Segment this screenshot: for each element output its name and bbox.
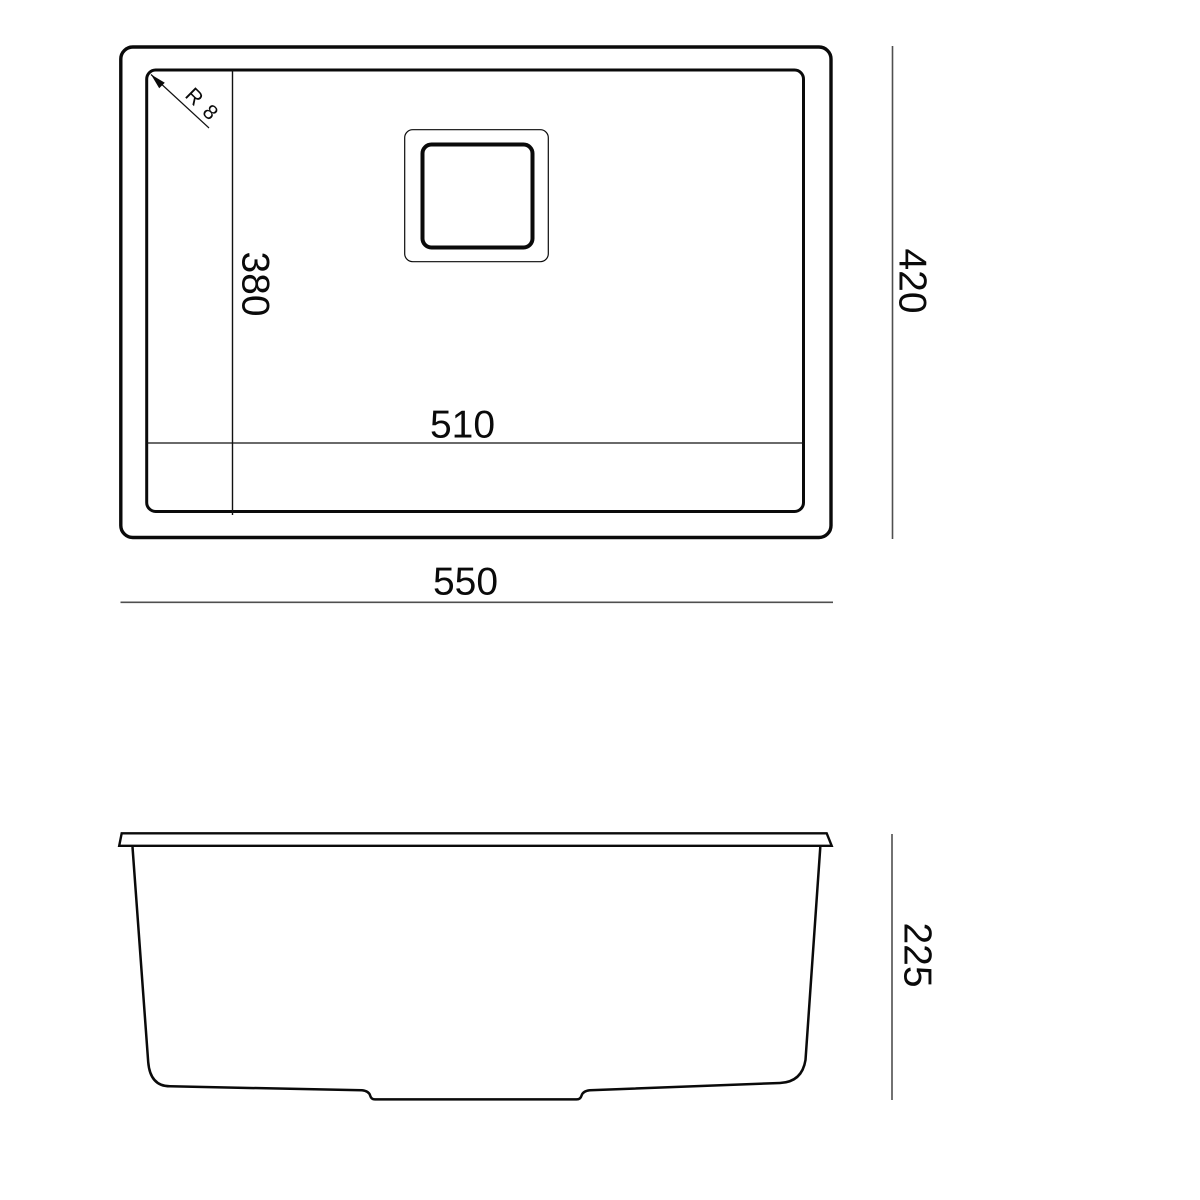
svg-text:510: 510 — [430, 404, 495, 447]
svg-text:225: 225 — [896, 922, 939, 987]
svg-text:550: 550 — [433, 561, 498, 604]
svg-text:420: 420 — [891, 248, 934, 313]
svg-text:380: 380 — [234, 251, 277, 316]
